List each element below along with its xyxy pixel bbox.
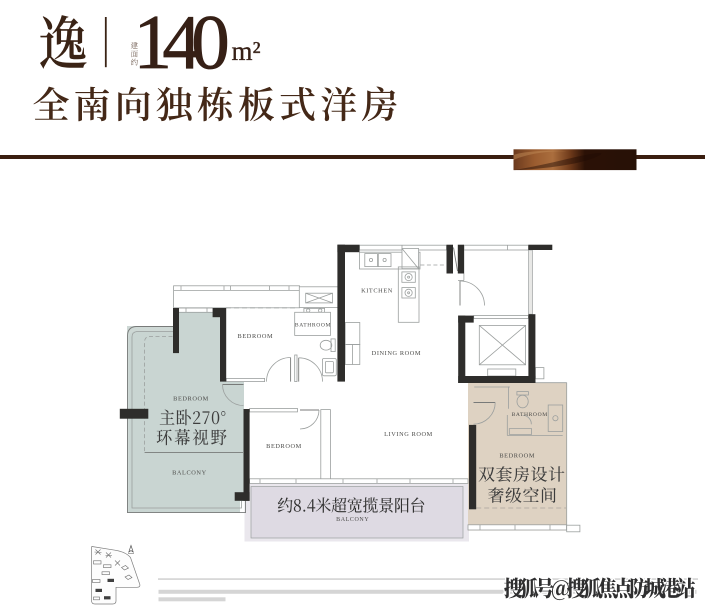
svg-text:BATHROOM: BATHROOM bbox=[512, 412, 548, 418]
svg-text:BEDROOM: BEDROOM bbox=[499, 453, 535, 460]
svg-text:BALCONY: BALCONY bbox=[336, 517, 369, 523]
svg-text:LIVING ROOM: LIVING ROOM bbox=[384, 431, 433, 438]
svg-text:140: 140 bbox=[134, 0, 228, 85]
svg-text:BALCONY: BALCONY bbox=[172, 470, 207, 477]
svg-text:BEDROOM: BEDROOM bbox=[173, 396, 209, 403]
svg-text:BEDROOM: BEDROOM bbox=[266, 443, 302, 450]
svg-text:m²: m² bbox=[232, 36, 261, 66]
svg-text:BATHROOM: BATHROOM bbox=[295, 323, 331, 329]
svg-text:BEDROOM: BEDROOM bbox=[238, 333, 274, 340]
svg-text:KITCHEN: KITCHEN bbox=[361, 288, 393, 295]
svg-text:DINING ROOM: DINING ROOM bbox=[372, 350, 421, 357]
